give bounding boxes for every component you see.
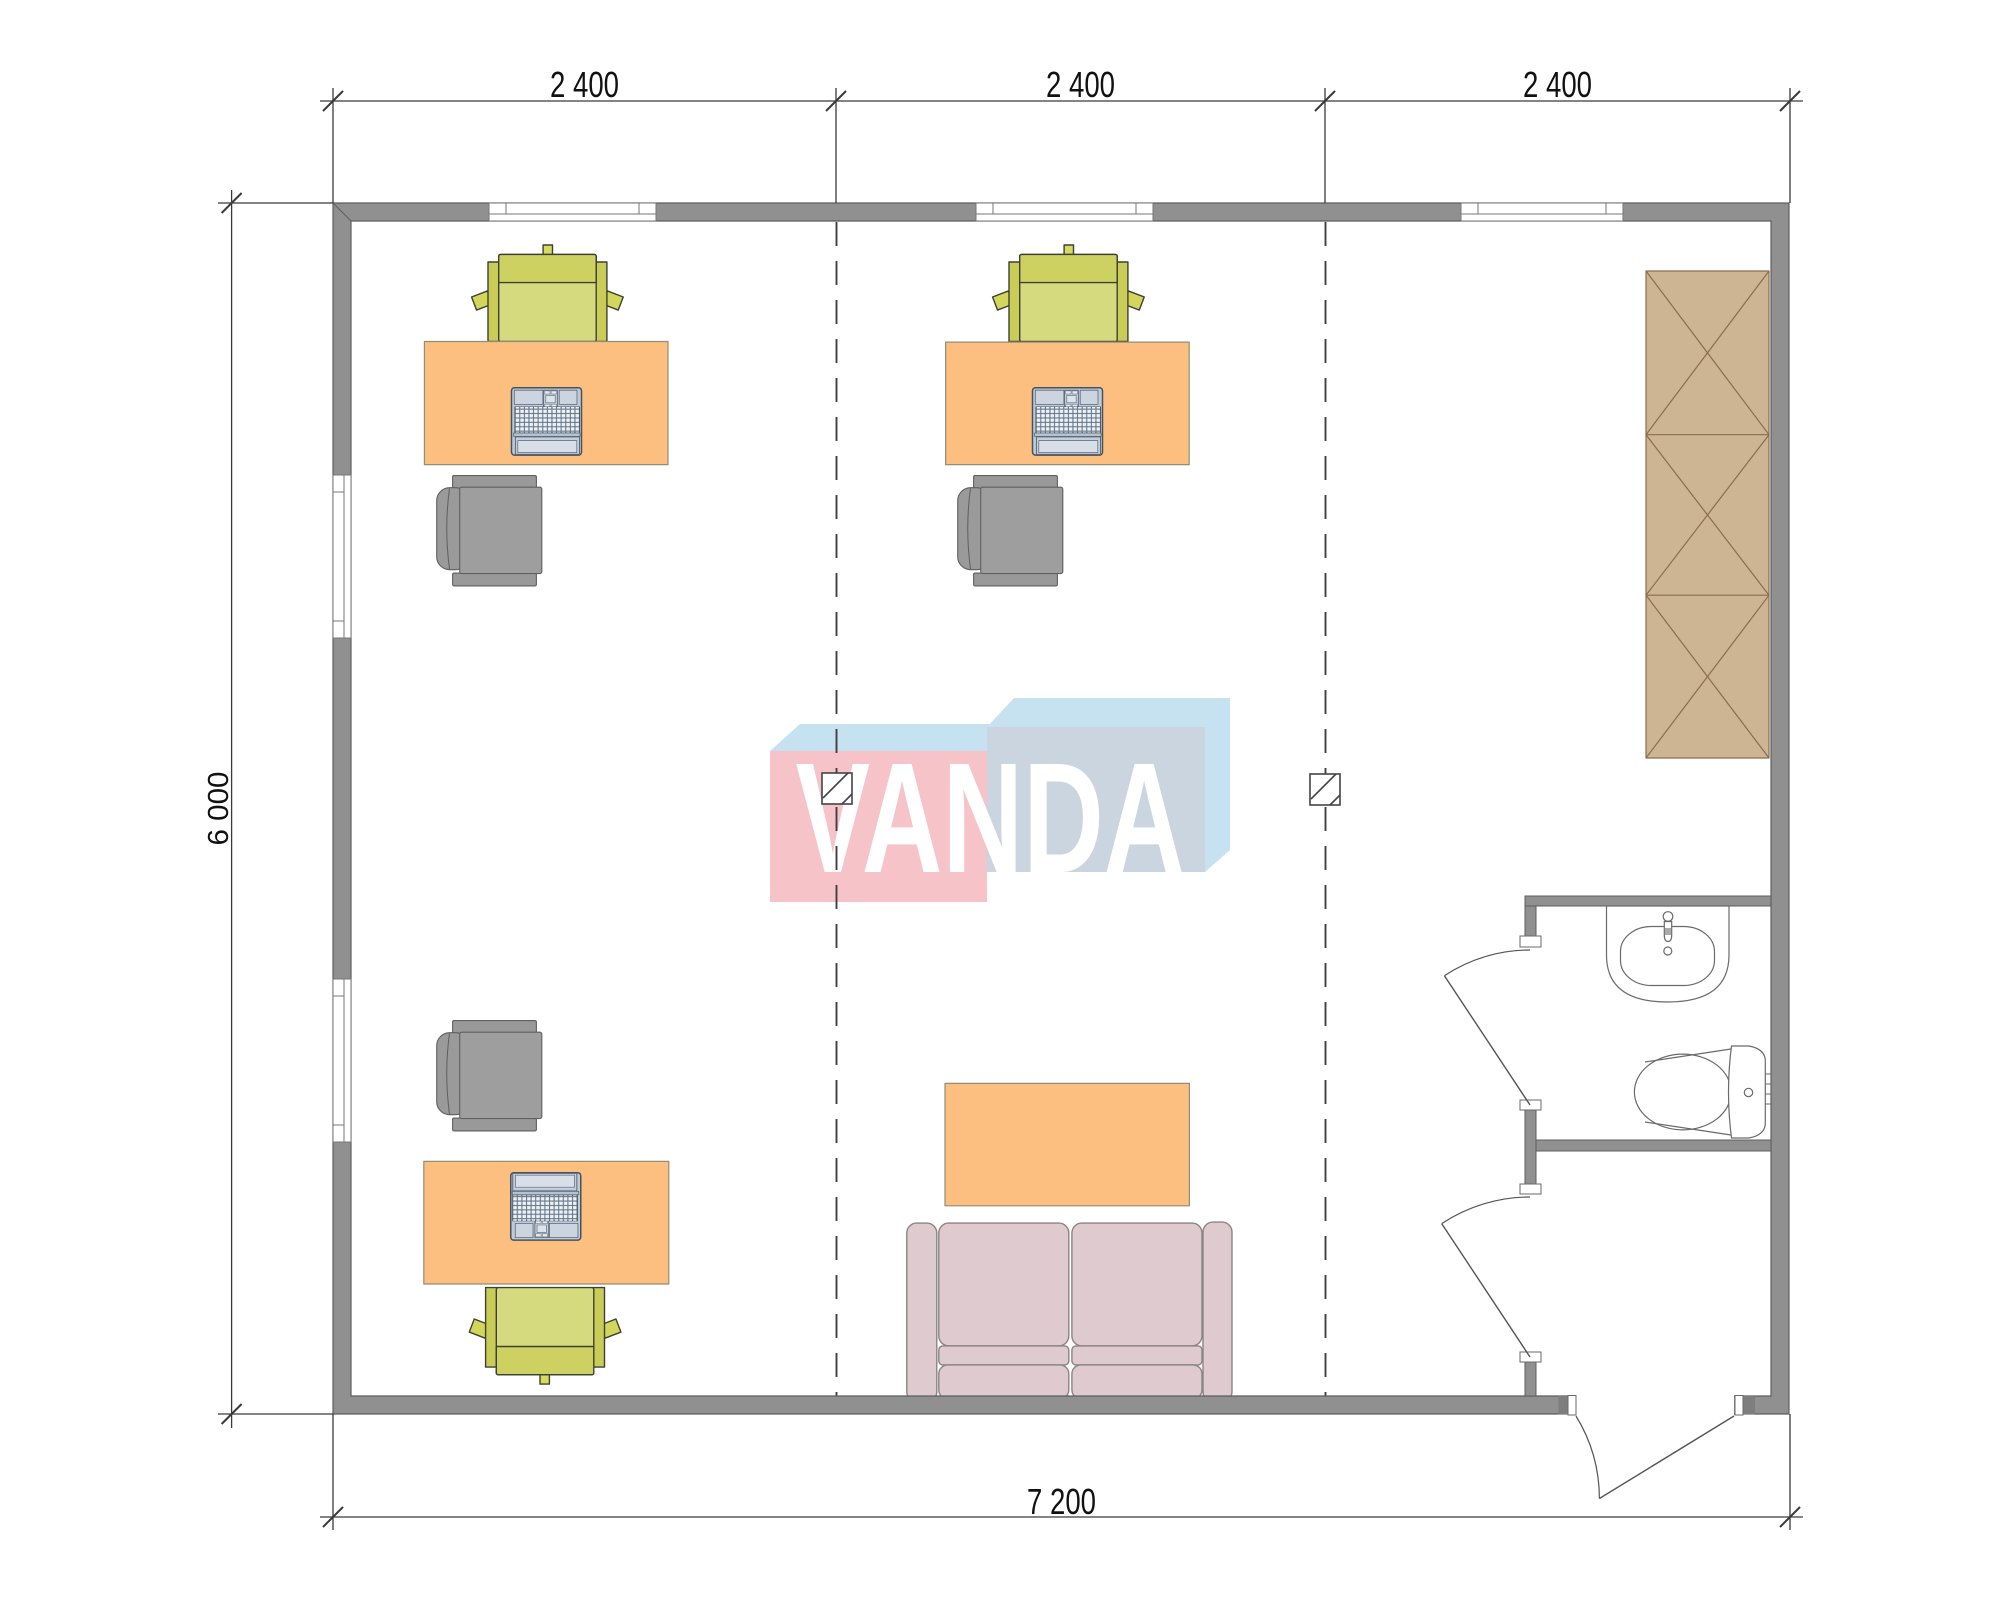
svg-text:6 000: 6 000: [203, 772, 235, 846]
svg-text:2 400: 2 400: [1046, 64, 1115, 105]
svg-text:2 400: 2 400: [1523, 64, 1592, 105]
svg-text:7 200: 7 200: [1027, 1481, 1096, 1522]
svg-text:VANDA: VANDA: [796, 731, 1185, 906]
svg-text:2 400: 2 400: [550, 64, 619, 105]
